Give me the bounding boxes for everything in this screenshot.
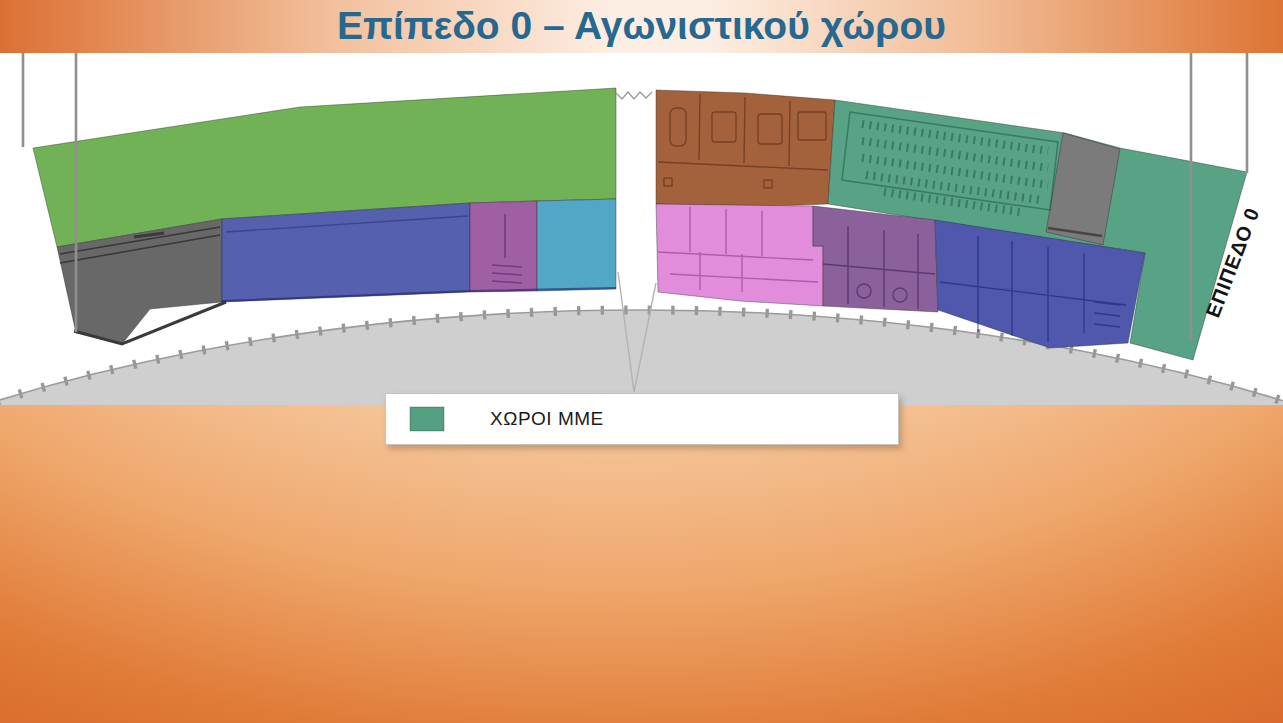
title-band: Επίπεδο 0 – Αγωνιστικού χώρου <box>0 0 1283 53</box>
legend-label-mme: ΧΩΡΟΙ ΜΜΕ <box>490 408 604 430</box>
left-wing <box>33 88 616 344</box>
zone-purple-left <box>470 201 537 292</box>
slide-title: Επίπεδο 0 – Αγωνιστικού χώρου <box>0 0 1283 52</box>
gap-squiggle <box>616 92 652 99</box>
slide: ΕΠΙΠΕΔΟ 0 Επίπεδο 0 – Αγωνιστικού χώρου … <box>0 0 1283 723</box>
legend-box: ΧΩΡΟΙ ΜΜΕ <box>385 393 899 445</box>
zone-cyan <box>537 199 616 291</box>
zone-purple-right <box>813 206 938 312</box>
floor-plan-drawing <box>0 0 1283 723</box>
arena-field <box>0 310 1283 723</box>
zone-pink <box>656 204 823 306</box>
legend-swatch-mme <box>409 406 445 432</box>
